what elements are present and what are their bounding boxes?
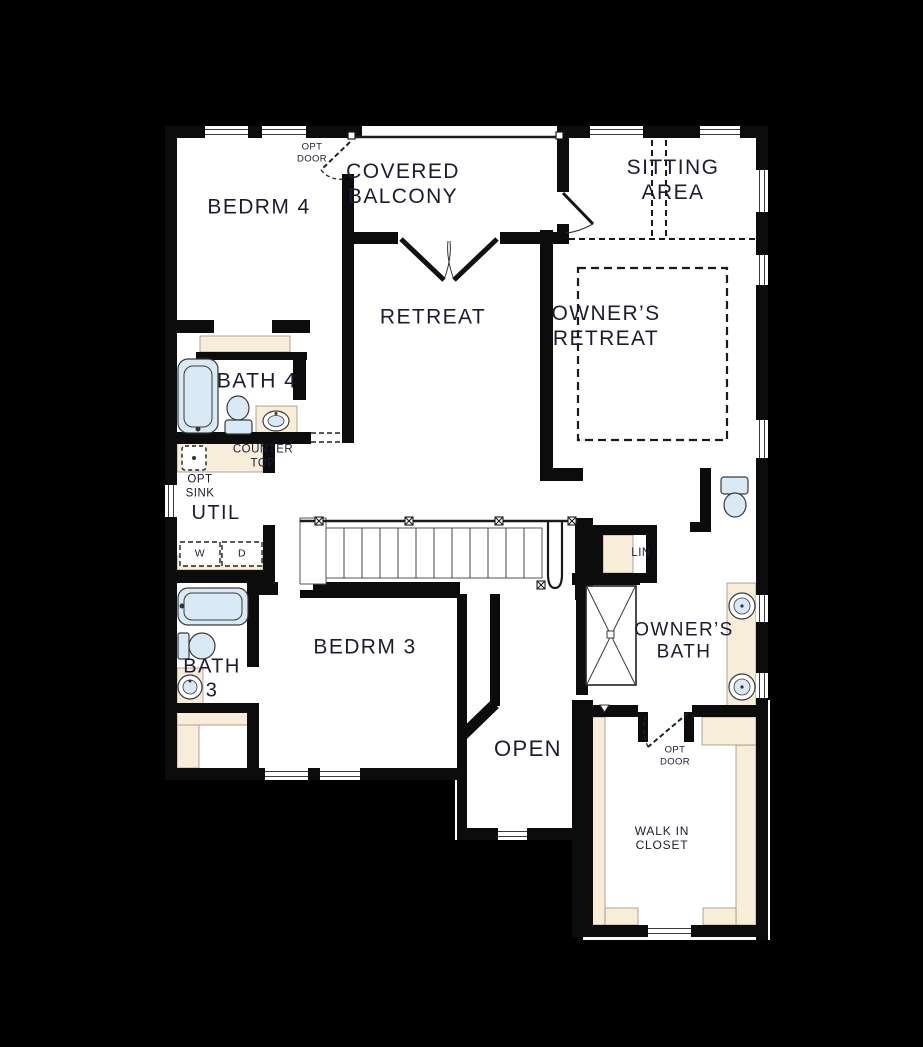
wall xyxy=(350,232,398,244)
room-label-linen: LIN xyxy=(631,546,650,560)
wic-shelf-right xyxy=(736,745,756,925)
wall xyxy=(196,352,307,360)
wall xyxy=(557,138,569,192)
window xyxy=(262,126,306,138)
window xyxy=(265,768,308,780)
wic-shelf-top-right xyxy=(702,717,756,745)
wall xyxy=(540,468,583,481)
wall xyxy=(165,703,259,713)
sink-owners-1 xyxy=(729,593,755,619)
annotation-washer: W xyxy=(195,547,205,560)
window xyxy=(756,595,768,622)
window xyxy=(700,126,740,138)
linen-shelf xyxy=(603,535,633,573)
room-label-util: UTIL xyxy=(192,502,241,526)
window xyxy=(205,126,248,138)
floor-plan: BEDRM 4 COVERED BALCONY SITTING AREA RET… xyxy=(0,0,923,1047)
wic-shelf-step-right xyxy=(703,908,736,925)
floor-plan-drawing xyxy=(0,0,923,1047)
wall xyxy=(540,230,553,481)
annotation-opt-door-upper: OPT DOOR xyxy=(297,142,327,167)
staircase xyxy=(300,517,578,589)
window xyxy=(165,485,177,517)
wall xyxy=(638,712,648,742)
wall xyxy=(684,712,694,742)
wall xyxy=(490,594,500,706)
window xyxy=(320,768,360,780)
room-label-owners-retreat: OWNER’S RETREAT xyxy=(552,302,661,352)
window xyxy=(648,925,691,937)
room-label-bedrm4: BEDRM 4 xyxy=(207,196,310,221)
window xyxy=(590,126,643,138)
wall xyxy=(247,582,259,667)
room-label-retreat: RETREAT xyxy=(380,306,486,331)
room-label-sitting-area: SITTING AREA xyxy=(627,156,720,206)
room-label-owners-bath: OWNER’S BATH xyxy=(634,620,734,665)
room-label-walk-in-closet: WALK IN CLOSET xyxy=(635,824,690,852)
annotation-counter-top: COUNTER TOP xyxy=(233,443,293,472)
window xyxy=(756,673,768,698)
wall xyxy=(690,522,711,532)
sink-bath4 xyxy=(263,411,289,431)
window xyxy=(756,170,768,212)
wall xyxy=(165,320,214,333)
window xyxy=(756,420,768,458)
wall xyxy=(272,320,310,333)
wall xyxy=(500,232,565,244)
window xyxy=(756,255,768,285)
wall xyxy=(583,705,638,717)
room-label-bedrm3: BEDRM 3 xyxy=(313,636,416,661)
wall xyxy=(165,768,467,780)
wall xyxy=(692,705,756,717)
annotation-dryer: D xyxy=(238,547,246,560)
wall xyxy=(756,126,768,940)
wall xyxy=(457,594,467,737)
sink-owners-2 xyxy=(729,674,755,700)
wall xyxy=(457,731,467,840)
room-label-bath3: BATH 3 xyxy=(183,655,240,702)
annotation-opt-door-lower: OPT DOOR xyxy=(660,745,690,770)
wall xyxy=(342,244,354,443)
bedrm4-closet-shelf xyxy=(200,336,290,352)
wall xyxy=(457,828,498,840)
opt-sink-outline xyxy=(182,446,206,470)
wall xyxy=(583,925,648,937)
wall xyxy=(165,570,275,583)
wall xyxy=(259,582,278,595)
room-label-covered-balcony: COVERED BALCONY xyxy=(346,160,460,210)
wall xyxy=(165,126,177,780)
stair-landing xyxy=(300,518,326,584)
room-label-bath4: BATH 4 xyxy=(217,370,297,395)
wall xyxy=(572,700,593,937)
bath3-closet-shelf-top xyxy=(177,712,253,725)
annotation-opt-sink: OPT SINK xyxy=(186,473,215,502)
window xyxy=(498,828,527,840)
wall xyxy=(691,925,768,937)
bathtub-bath3 xyxy=(178,588,248,625)
room-label-open: OPEN xyxy=(494,736,562,762)
wic-shelf-step-left xyxy=(605,908,638,925)
wall xyxy=(300,590,460,598)
bathtub-bath4 xyxy=(178,359,218,433)
